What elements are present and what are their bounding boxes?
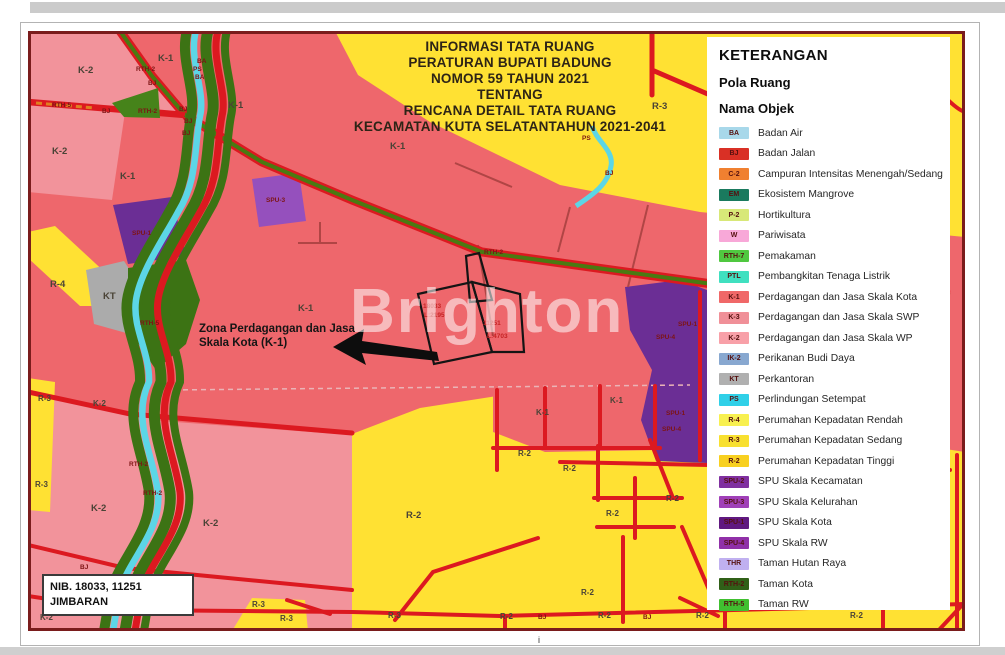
map-label: BA [195, 74, 205, 81]
legend-label: Perdagangan dan Jasa Skala SWP [758, 312, 919, 323]
map-label: PS [193, 66, 202, 73]
legend-item: BJBadan Jalan [719, 148, 950, 160]
map-label: SPU-4 [662, 426, 682, 433]
zone-k2-left [28, 102, 125, 200]
legend-label: Taman Hutan Raya [758, 558, 846, 569]
legend-item: PTLPembangkitan Tenaga Listrik [719, 271, 950, 283]
map-label: R-2 [518, 449, 531, 458]
legend-swatch: K-1 [719, 291, 749, 303]
map-label: SPU-3 [266, 197, 286, 204]
top-gray-bar [30, 2, 1005, 13]
zone-annotation-line: Zona Perdagangan dan Jasa [199, 322, 369, 336]
legend-swatch: RTH-2 [719, 578, 749, 590]
legend-swatch: PS [719, 394, 749, 406]
legend-swatch: BJ [719, 148, 749, 160]
legend-label: Campuran Intensitas Menengah/Sedang [758, 169, 943, 180]
zone-annotation-line: Skala Kota (K-1) [199, 336, 369, 350]
legend-item: R-2Perumahan Kepadatan Tinggi [719, 455, 950, 467]
map-label: K-1 [228, 100, 244, 111]
legend-item: EMEkosistem Mangrove [719, 189, 950, 201]
map-label: K-1 [390, 141, 406, 152]
map-label: BJ [148, 80, 157, 87]
legend-label: Perkantoran [758, 374, 814, 385]
map-label: R-2 [606, 509, 619, 518]
legend-label: Badan Air [758, 128, 803, 139]
map-label: SPU-1 [132, 230, 152, 237]
axis-tick: i [538, 635, 540, 645]
legend-item: THRTaman Hutan Raya [719, 558, 950, 570]
nib-location: JIMBARAN [50, 595, 186, 610]
legend-label: Hortikultura [758, 210, 811, 221]
legend-item: RTH-5Taman RW [719, 599, 950, 611]
map-label: RTH-2 [484, 249, 504, 256]
legend-item: SPU-2SPU Skala Kecamatan [719, 476, 950, 488]
legend-item: RTH-2Taman Kota [719, 578, 950, 590]
legend-label: Perlindungan Setempat [758, 394, 866, 405]
map-label: RTH-2 [143, 490, 163, 497]
legend-swatch: RTH-5 [719, 599, 749, 611]
legend-label: SPU Skala Kecamatan [758, 476, 863, 487]
legend-label: Ekosistem Mangrove [758, 189, 854, 200]
legend-item: SPU-4SPU Skala RW [719, 537, 950, 549]
legend-label: Pembangkitan Tenaga Listrik [758, 271, 890, 282]
legend-item: C-2Campuran Intensitas Menengah/Sedang [719, 168, 950, 180]
legend-swatch: K-3 [719, 312, 749, 324]
map-label: K-2 [93, 399, 106, 408]
legend-item: R-3Perumahan Kepadatan Sedang [719, 435, 950, 447]
legend-swatch: SPU-1 [719, 517, 749, 529]
legend-label: Perumahan Kepadatan Rendah [758, 415, 903, 426]
map-label: R-2 [406, 510, 421, 521]
legend-swatch: W [719, 230, 749, 242]
map-label: RTH-2 [138, 108, 158, 115]
zone-k1-finger [493, 383, 665, 452]
map-label: BJ [102, 108, 111, 115]
map-label: K-1 [298, 303, 314, 314]
map-label: RTH-2 [129, 461, 149, 468]
map-label: BJ [179, 106, 188, 113]
legend-subtitle-nama-objek: Nama Objek [719, 101, 950, 116]
legend-label: Taman RW [758, 599, 809, 610]
map-label: K-2 [203, 518, 218, 529]
legend-label: Perdagangan dan Jasa Skala WP [758, 333, 913, 344]
legend-swatch: R-2 [719, 455, 749, 467]
map-label: RTH-2 [136, 66, 156, 73]
title-line: TENTANG [300, 87, 720, 103]
map-label: K-1 [536, 408, 549, 417]
legend-swatch: KT [719, 373, 749, 385]
legend-label: Pariwisata [758, 230, 806, 241]
legend-items: BABadan AirBJBadan JalanC-2Campuran Inte… [719, 127, 950, 611]
legend-subtitle-pola-ruang: Pola Ruang [719, 75, 950, 90]
legend-item: SPU-1SPU Skala Kota [719, 517, 950, 529]
map-label: SPU-1 [678, 321, 698, 328]
map-label: SPU-4 [656, 334, 676, 341]
legend-swatch: RTH-7 [719, 250, 749, 262]
map-label: R-3 [35, 480, 48, 489]
map-label: R-2 [563, 464, 576, 473]
legend-swatch: R-4 [719, 414, 749, 426]
legend-label: Perumahan Kepadatan Sedang [758, 435, 902, 446]
map-label: R-3 [38, 394, 51, 403]
legend-swatch: P-2 [719, 209, 749, 221]
map-label: BJ [643, 614, 652, 621]
legend-item: PSPerlindungan Setempat [719, 394, 950, 406]
legend-item: KTPerkantoran [719, 373, 950, 385]
legend-item: K-2Perdagangan dan Jasa Skala WP [719, 332, 950, 344]
bottom-gray-bar [0, 647, 1005, 655]
legend-item: R-4Perumahan Kepadatan Rendah [719, 414, 950, 426]
legend-item: RTH-7Pemakaman [719, 250, 950, 262]
legend-swatch: SPU-3 [719, 496, 749, 508]
legend-swatch: PTL [719, 271, 749, 283]
map-label: R-3 [252, 600, 265, 609]
map-label: K-1 [158, 53, 174, 64]
map-label: BJ [538, 614, 547, 621]
title-line: RENCANA DETAIL TATA RUANG [300, 103, 720, 119]
legend-label: SPU Skala Kota [758, 517, 832, 528]
legend-swatch: SPU-2 [719, 476, 749, 488]
map-label: BJ [605, 170, 614, 177]
legend-swatch: THR [719, 558, 749, 570]
map-label: R-2 [696, 611, 709, 620]
map-label: R-2 [581, 588, 594, 597]
legend-item: K-3Perdagangan dan Jasa Skala SWP [719, 312, 950, 324]
map-label: R-2 [500, 612, 513, 621]
legend-swatch: EM [719, 189, 749, 201]
brighton-watermark: Brighton [350, 276, 624, 347]
map-label: KT [103, 291, 116, 302]
map-label: K-2 [52, 146, 67, 157]
legend-item: P-2Hortikultura [719, 209, 950, 221]
legend-item: WPariwisata [719, 230, 950, 242]
map-title: INFORMASI TATA RUANG PERATURAN BUPATI BA… [300, 39, 720, 135]
map-label: RTH-5 [140, 320, 160, 327]
map-label: R-3 [280, 614, 293, 623]
map-label: R-3 [388, 611, 401, 620]
legend-item: SPU-3SPU Skala Kelurahan [719, 496, 950, 508]
map-label: PS [582, 135, 591, 142]
map-label: BJ [182, 130, 191, 137]
legend-title: KETERANGAN [719, 47, 950, 64]
legend-swatch: R-3 [719, 435, 749, 447]
map-label: K-1 [610, 396, 623, 405]
title-line: INFORMASI TATA RUANG [300, 39, 720, 55]
legend-panel: KETERANGAN Pola Ruang Nama Objek BABadan… [707, 37, 950, 610]
map-label: BJ [184, 118, 193, 125]
map-label: K-1 [120, 171, 136, 182]
legend-swatch: K-2 [719, 332, 749, 344]
legend-swatch: BA [719, 127, 749, 139]
legend-label: SPU Skala RW [758, 538, 828, 549]
map-label: SPU-1 [666, 410, 686, 417]
legend-label: Badan Jalan [758, 148, 815, 159]
legend-label: Perumahan Kepadatan Tinggi [758, 456, 894, 467]
nib-label-box: NIB. 18033, 11251 JIMBARAN [42, 574, 194, 616]
title-line: KECAMATAN KUTA SELATANTAHUN 2021-2041 [300, 119, 720, 135]
legend-label: Pemakaman [758, 251, 816, 262]
map-label: BA [197, 58, 207, 65]
map-label: R-2 [666, 494, 679, 503]
legend-item: K-1Perdagangan dan Jasa Skala Kota [719, 291, 950, 303]
map-label: K-2 [91, 503, 106, 514]
map-label: K-2 [78, 65, 93, 76]
map-label: BJ [80, 564, 89, 571]
legend-swatch: C-2 [719, 168, 749, 180]
zone-annotation: Zona Perdagangan dan Jasa Skala Kota (K-… [199, 322, 369, 350]
nib-number: NIB. 18033, 11251 [50, 580, 186, 595]
legend-item: IK-2Perikanan Budi Daya [719, 353, 950, 365]
legend-label: SPU Skala Kelurahan [758, 497, 858, 508]
legend-label: Perikanan Budi Daya [758, 353, 855, 364]
map-label: RTH-5 [52, 102, 72, 109]
map-label: R-2 [850, 611, 863, 620]
title-line: NOMOR 59 TAHUN 2021 [300, 71, 720, 87]
legend-label: Perdagangan dan Jasa Skala Kota [758, 292, 917, 303]
map-label: R-4 [50, 279, 66, 290]
legend-item: BABadan Air [719, 127, 950, 139]
title-line: PERATURAN BUPATI BADUNG [300, 55, 720, 71]
legend-label: Taman Kota [758, 579, 813, 590]
map-label: R-2 [598, 611, 611, 620]
legend-swatch: SPU-4 [719, 537, 749, 549]
legend-swatch: IK-2 [719, 353, 749, 365]
